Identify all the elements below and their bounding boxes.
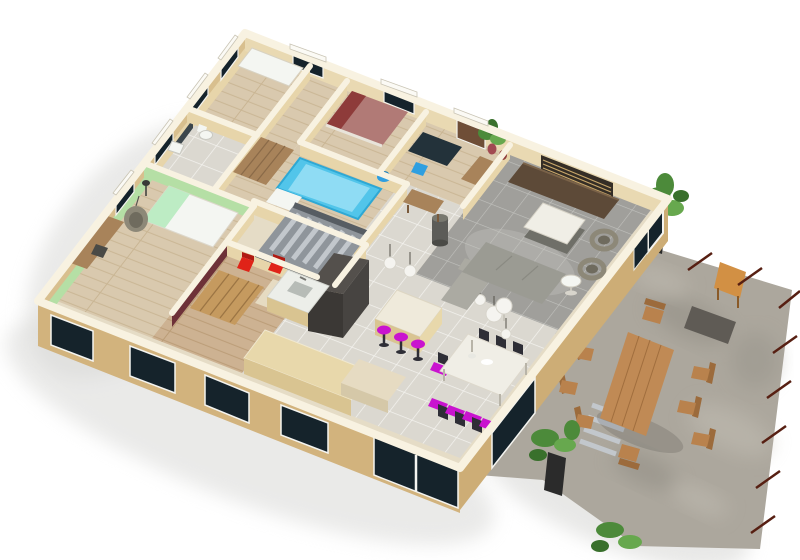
foliage [591,540,609,552]
stool-seat-magenta [377,326,391,335]
foliage [529,449,547,461]
foliage [673,190,689,202]
stool-base [413,357,423,361]
pendant-globe [501,329,511,339]
mottle-5 [731,332,779,388]
pendant-globe [404,265,416,277]
side-table-base [565,291,577,296]
tableware-dish [468,354,476,359]
foliage [554,438,576,452]
ball-floor-lamp [496,298,512,314]
floor-plan-render [0,0,800,560]
round-side-table [561,275,581,287]
foliage [596,522,624,538]
stool-base [379,343,389,347]
stool-seat-magenta [411,340,425,349]
foliage [564,420,580,440]
foliage [618,535,642,549]
floor-lamp-shade [142,180,150,186]
stove-cylinder-top [432,214,448,222]
stove-cylinder-base [432,240,448,247]
hanging-chair-seat [129,212,143,228]
wicker-armchair-seat [598,236,610,245]
vase [488,144,497,155]
toilet-bowl [200,131,213,140]
wicker-armchair-seat [586,265,598,274]
pendant-globe [384,257,396,269]
scene-canvas [0,0,800,560]
stool-seat-magenta [394,333,408,342]
stool-base [396,350,406,354]
tableware-bowl [481,359,493,365]
